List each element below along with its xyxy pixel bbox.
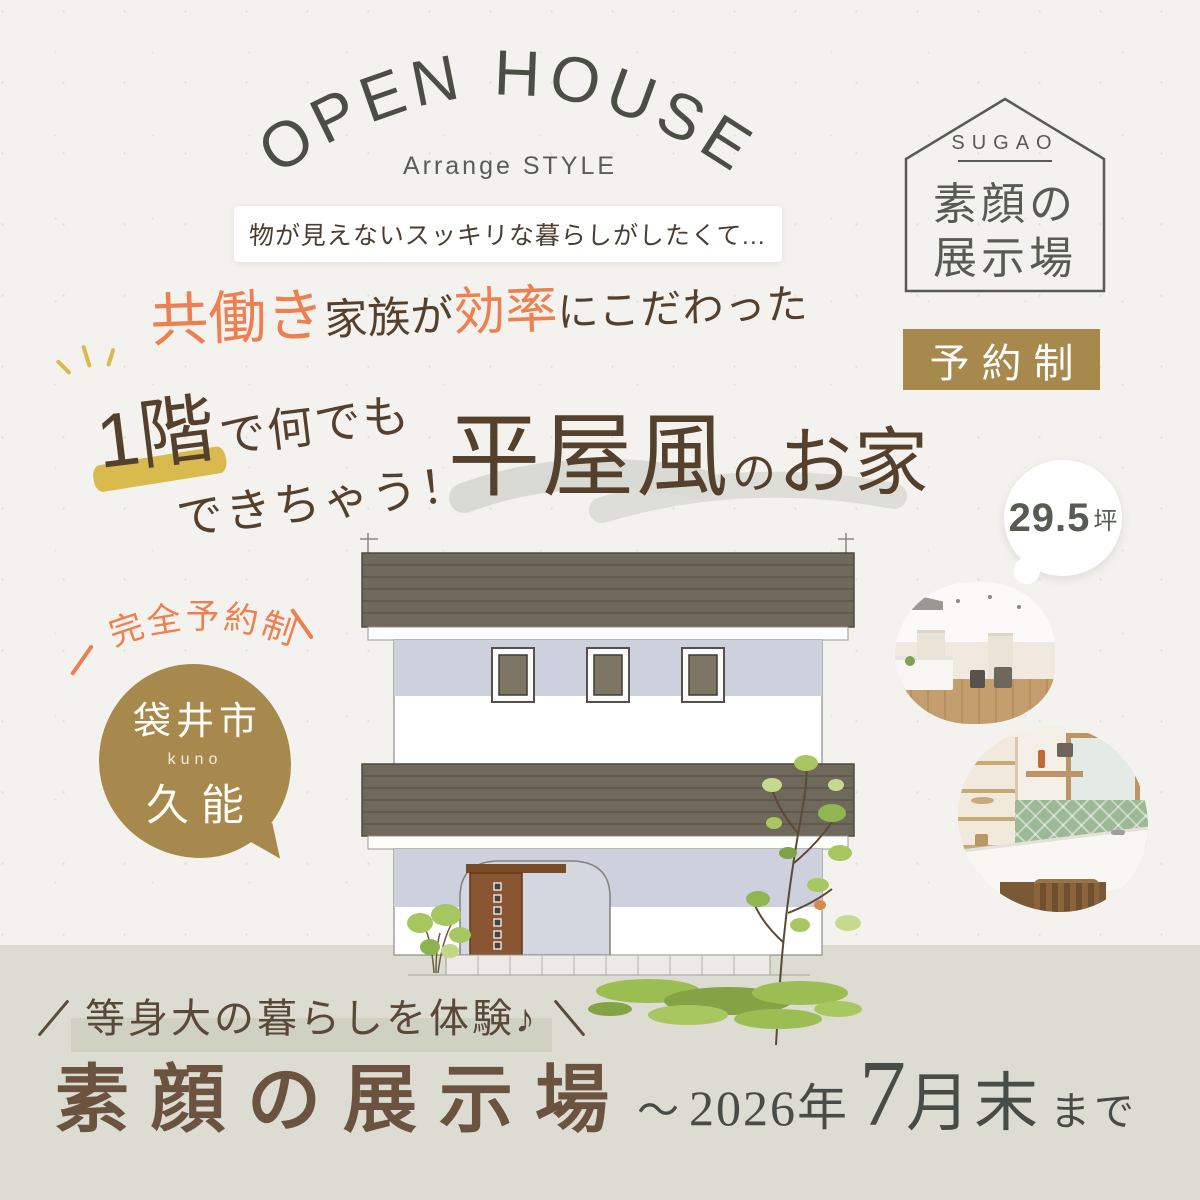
photo1-chair — [970, 670, 984, 688]
svg-text:完全予約制: 完全予約制 — [104, 598, 303, 654]
location-name: 久能 — [134, 771, 256, 833]
area-bubble: 29.5 坪 — [1004, 460, 1122, 576]
note-text: 物が見えないスッキリな暮らしがしたくて... — [249, 216, 767, 252]
area-value: 29.5 — [1009, 496, 1091, 541]
sparkle-icon — [56, 359, 72, 375]
plant-icon — [905, 656, 915, 666]
photo2-wood-shelf — [1026, 771, 1083, 777]
photo1-kitchen-island — [895, 656, 953, 690]
house-illustration — [348, 523, 868, 1055]
footer-period: ～ 2026年 7 月末 まで — [637, 1040, 1138, 1148]
full-reserve-note: 完全予約制 — [72, 590, 336, 676]
location-romaji: kuno — [168, 751, 223, 769]
area-unit: 坪 — [1093, 501, 1117, 536]
faucet-icon — [1111, 830, 1125, 835]
headline-main: 平屋風 の お家 — [448, 382, 928, 522]
photo-washroom — [958, 726, 1148, 912]
sparkle-icon — [106, 348, 115, 367]
location-city: 袋井市 — [128, 690, 262, 745]
note-box: 物が見えないスッキリな暮らしがしたくて... — [234, 206, 782, 262]
period-until: まで — [1050, 1079, 1138, 1137]
sparkle-icon — [81, 345, 92, 368]
bowl-icon — [971, 797, 994, 804]
headline-particle: の — [732, 437, 776, 501]
subtitle: Arrange STYLE — [250, 152, 770, 181]
period-year: 2026年 — [689, 1068, 849, 1140]
period-month-unit: 月末 — [906, 1052, 1042, 1144]
catch-seg1: 共働き — [149, 268, 326, 358]
catchline: 共働き 家族が 効率 にこだわった — [149, 250, 832, 358]
reserve-badge: 予約制 — [903, 329, 1100, 390]
underline — [958, 160, 1052, 162]
catch-seg3: 効率 — [452, 267, 559, 346]
reserve-label: 予約制 — [918, 331, 1086, 389]
photo2-basket — [1034, 879, 1099, 912]
headline-oie: お家 — [778, 403, 930, 510]
headline-rest1: で何でも — [215, 378, 414, 467]
wire-basket-icon — [1057, 743, 1073, 757]
headline-hiraya: 平屋風 — [448, 382, 730, 515]
photo1-sofa — [994, 667, 1012, 688]
bottle-icon — [975, 834, 988, 846]
downlight-icon — [1017, 605, 1021, 609]
period-tilde: ～ — [637, 1077, 679, 1138]
full-reserve-text: 完全予約制 — [104, 598, 303, 654]
photo-living-room — [895, 582, 1055, 724]
catch-seg4: にこだわった — [556, 270, 809, 339]
headline-floor: 1階 — [86, 366, 225, 491]
bottle-icon — [1038, 750, 1045, 768]
arc-title: OPEN HOUSE — [235, 42, 780, 232]
downlight-icon — [956, 599, 960, 603]
footer-title: 素顔の展示場 — [55, 1040, 631, 1147]
footer-title-row: 素顔の展示場 ～ 2026年 7 月末 まで — [55, 1040, 1185, 1148]
sugao-line2: 展示場 — [903, 222, 1107, 286]
sugao-en: SUGAO — [903, 132, 1107, 155]
location-bubble: 袋井市 kuno 久能 — [99, 664, 291, 858]
openhouse-flyer: OPEN HOUSE Arrange STYLE 物が見えないスッキリな暮らしが… — [0, 0, 1200, 1200]
period-month-number: 7 — [859, 1040, 906, 1148]
downlight-icon — [988, 595, 992, 599]
sugao-badge: SUGAO 素顔の 展示場 — [903, 96, 1107, 294]
